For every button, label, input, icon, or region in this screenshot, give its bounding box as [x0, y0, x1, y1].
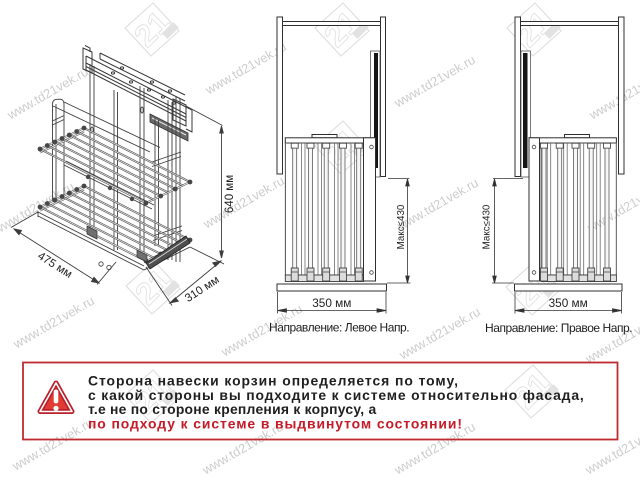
svg-text:www.td21vek.ru: www.td21vek.ru — [200, 173, 287, 232]
svg-text:www.td21vek.ru: www.td21vek.ru — [9, 415, 96, 474]
svg-text:640 мм: 640 мм — [224, 175, 236, 213]
svg-text:Направление: Правое Напр.: Направление: Правое Напр. — [485, 321, 632, 335]
svg-text:350 мм: 350 мм — [549, 296, 588, 310]
svg-text:350 мм: 350 мм — [312, 296, 351, 310]
svg-text:www.td21vek.ru: www.td21vek.ru — [582, 308, 640, 367]
svg-text:www.td21vek.ru: www.td21vek.ru — [586, 64, 640, 123]
svg-text:Макс≤430: Макс≤430 — [482, 204, 493, 249]
svg-text:www.td21vek.ru: www.td21vek.ru — [4, 64, 91, 123]
svg-text:Макс≤430: Макс≤430 — [396, 204, 407, 249]
svg-text:www.td21vek.ru: www.td21vek.ru — [391, 52, 478, 111]
svg-text:www.td21vek.ru: www.td21vek.ru — [202, 39, 289, 98]
svg-text:www.td21vek.ru: www.td21vek.ru — [10, 293, 97, 352]
svg-text:www.td21vek.ru: www.td21vek.ru — [582, 419, 640, 478]
svg-text:по подходу к системе в выдвину: по подходу к системе в выдвинутом состоя… — [88, 416, 463, 432]
svg-text:310 мм: 310 мм — [183, 274, 222, 305]
svg-text:Направление: Левое Напр.: Направление: Левое Напр. — [269, 321, 409, 335]
